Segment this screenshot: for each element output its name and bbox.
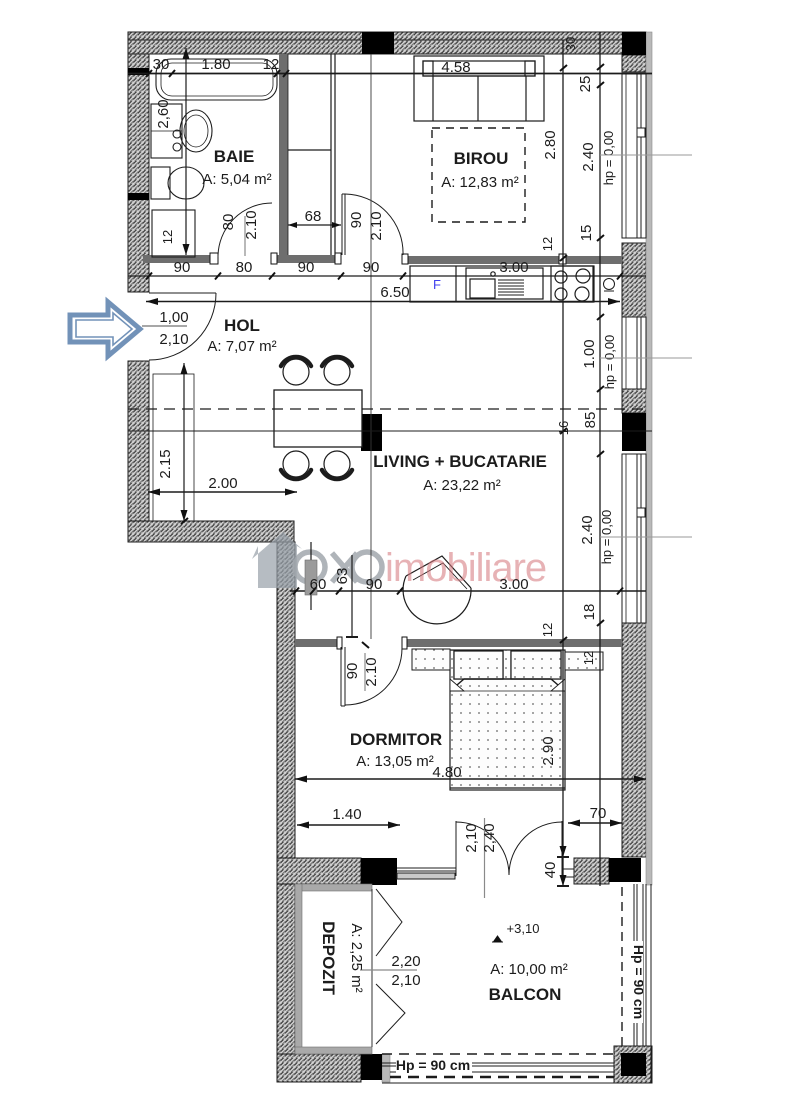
svg-text:2,20: 2,20 [391,953,420,970]
svg-text:2.10: 2.10 [243,210,260,239]
svg-text:2.40: 2.40 [580,142,597,171]
svg-text:A: 5,04 m²: A: 5,04 m² [202,171,271,188]
svg-text:A: 2,25 m²: A: 2,25 m² [348,923,365,992]
svg-text:2,10: 2,10 [159,331,188,348]
svg-text:DEPOZIT: DEPOZIT [319,921,338,995]
svg-text:A: 12,83 m²: A: 12,83 m² [441,174,519,191]
svg-text:2.10: 2.10 [363,657,380,686]
svg-text:40: 40 [542,862,559,879]
svg-text:15: 15 [578,225,595,242]
svg-text:4.80: 4.80 [432,764,461,781]
svg-text:A: 13,05 m²: A: 13,05 m² [356,753,434,770]
svg-text:63: 63 [334,568,351,585]
svg-text:1.00: 1.00 [581,339,598,368]
svg-text:2,40: 2,40 [481,823,498,852]
svg-text:BALCON: BALCON [489,985,562,1004]
svg-text:2.90: 2.90 [540,736,557,765]
svg-text:hp = 0,00: hp = 0,00 [601,131,616,186]
svg-text:3.00: 3.00 [499,576,528,593]
svg-text:2.10: 2.10 [368,211,385,240]
svg-text:12: 12 [540,623,555,637]
svg-text:Hp = 90 cm: Hp = 90 cm [631,945,647,1019]
svg-text:+3,10: +3,10 [507,921,540,936]
svg-text:80: 80 [220,214,237,231]
svg-text:90: 90 [348,212,365,229]
svg-text:18: 18 [581,604,598,621]
svg-text:25: 25 [577,76,594,93]
svg-text:2.80: 2.80 [542,130,559,159]
svg-text:85: 85 [582,412,599,429]
svg-text:LIVING + BUCATARIE: LIVING + BUCATARIE [373,452,547,471]
svg-text:12: 12 [263,56,280,73]
svg-text:BAIE: BAIE [214,147,255,166]
svg-text:2,60: 2,60 [155,99,172,128]
svg-text:30: 30 [563,37,578,51]
svg-text:DORMITOR: DORMITOR [350,730,442,749]
svg-text:90: 90 [363,259,380,276]
svg-text:A: 10,00 m²: A: 10,00 m² [490,961,568,978]
svg-text:68: 68 [305,208,322,225]
svg-text:A: 7,07 m²: A: 7,07 m² [207,338,276,355]
svg-text:80: 80 [236,259,253,276]
svg-text:30: 30 [153,56,170,73]
svg-text:90: 90 [174,259,191,276]
svg-text:3.00: 3.00 [499,259,528,276]
svg-text:2,10: 2,10 [463,823,480,852]
svg-text:2.00: 2.00 [208,475,237,492]
svg-text:70: 70 [590,805,607,822]
svg-text:2.40: 2.40 [579,515,596,544]
svg-text:1.40: 1.40 [332,806,361,823]
svg-text:16: 16 [556,421,571,435]
svg-text:F: F [433,277,441,292]
svg-text:1.80: 1.80 [201,56,230,73]
svg-text:6.50: 6.50 [380,284,409,301]
svg-text:2.15: 2.15 [157,449,174,478]
svg-text:12: 12 [540,237,555,251]
svg-text:4.58: 4.58 [441,59,470,76]
svg-text:60: 60 [310,576,327,593]
svg-text:90: 90 [298,259,315,276]
svg-text:hp = 0,00: hp = 0,00 [602,335,617,390]
svg-text:90: 90 [366,576,383,593]
svg-text:BIROU: BIROU [454,149,509,168]
svg-text:12: 12 [581,651,596,665]
svg-text:1,00: 1,00 [159,309,188,326]
svg-text:12: 12 [160,230,175,244]
svg-text:HOL: HOL [224,316,260,335]
svg-text:A: 23,22 m²: A: 23,22 m² [423,477,501,494]
svg-text:2,10: 2,10 [391,972,420,989]
svg-text:Hp = 90 cm: Hp = 90 cm [396,1057,470,1073]
svg-text:90: 90 [344,663,361,680]
